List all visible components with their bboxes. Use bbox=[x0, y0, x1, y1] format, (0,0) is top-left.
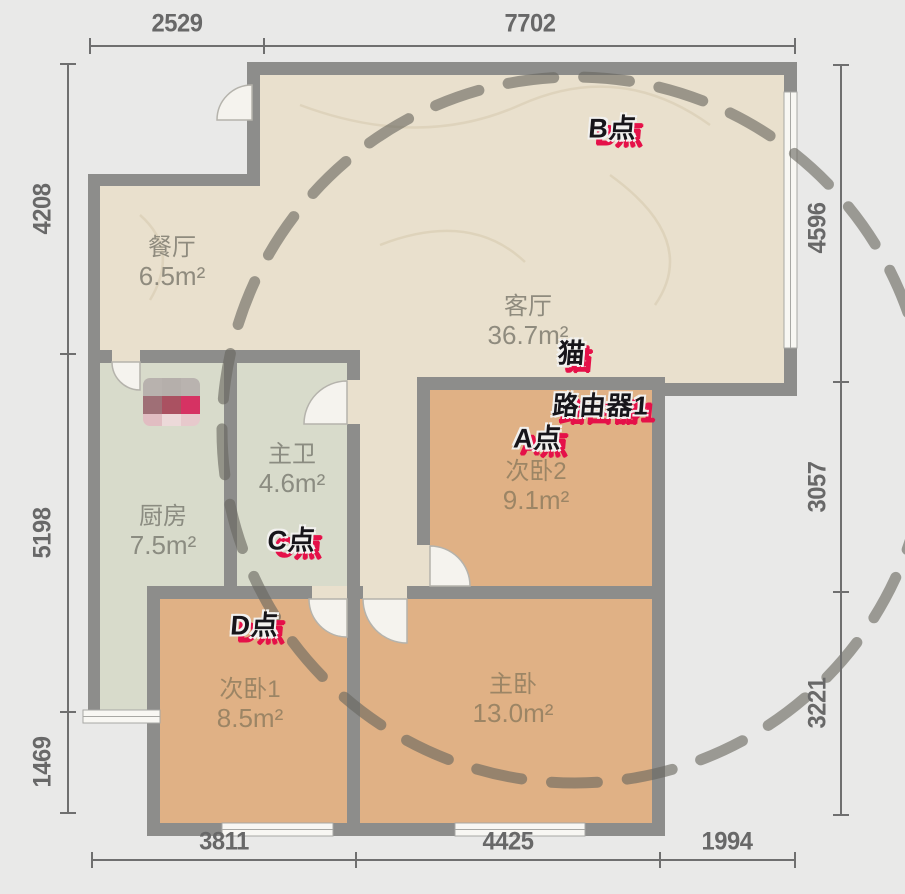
mosaic-cell bbox=[162, 378, 181, 396]
room-area: 7.5m² bbox=[130, 531, 196, 560]
mosaic-cell bbox=[143, 396, 162, 414]
dim-right-middle: 3057 bbox=[804, 462, 833, 513]
marker-text: A点 bbox=[512, 424, 563, 454]
room-name: 厨房 bbox=[130, 504, 196, 531]
room-label-bathroom: 主卫 4.6m² bbox=[259, 442, 325, 498]
room-label-dining: 餐厅 6.5m² bbox=[139, 235, 205, 291]
marker-d-point: D点 D点 bbox=[229, 604, 281, 643]
room-area: 13.0m² bbox=[473, 699, 554, 728]
dim-top-left: 2529 bbox=[152, 10, 203, 39]
marker-c-point: C点 C点 bbox=[266, 519, 318, 558]
room-label-kitchen: 厨房 7.5m² bbox=[130, 504, 196, 560]
dim-right-top: 4596 bbox=[804, 203, 833, 254]
dim-bottom-left: 3811 bbox=[199, 828, 249, 857]
dim-left-bottom: 1469 bbox=[29, 737, 58, 788]
room-name: 主卫 bbox=[259, 442, 325, 469]
room-area: 6.5m² bbox=[139, 262, 205, 291]
mosaic-cell bbox=[143, 414, 162, 426]
room-name: 次卧1 bbox=[217, 677, 283, 704]
marker-router: 路由器1 路由器1 bbox=[551, 386, 651, 423]
dim-right-bottom: 3221 bbox=[804, 678, 833, 729]
room-name: 餐厅 bbox=[139, 235, 205, 262]
marker-modem: 猫 猫 bbox=[556, 332, 587, 371]
room-name: 客厅 bbox=[488, 294, 569, 321]
floor-plan-drawing bbox=[0, 0, 905, 894]
room-area: 8.5m² bbox=[217, 704, 283, 733]
mosaic-cell bbox=[181, 396, 200, 414]
floor-plan-screenshot: 2529 7702 3811 4425 1994 4208 5198 1469 … bbox=[0, 0, 905, 894]
mosaic-cell bbox=[162, 414, 181, 426]
room-name: 主卧 bbox=[473, 672, 554, 699]
room-area: 36.7m² bbox=[488, 321, 569, 350]
dim-left-middle: 5198 bbox=[29, 508, 58, 559]
dim-left-top: 4208 bbox=[29, 184, 58, 235]
entry-door-arc bbox=[217, 85, 252, 120]
dim-bottom-right: 1994 bbox=[702, 828, 753, 857]
room-area: 9.1m² bbox=[503, 486, 569, 515]
room-name: 次卧2 bbox=[503, 459, 569, 486]
room-label-bedroom2: 次卧2 9.1m² bbox=[503, 459, 569, 515]
dim-top-right: 7702 bbox=[505, 10, 556, 39]
marker-text: 路由器1 bbox=[551, 391, 650, 421]
marker-b-point: B点 B点 bbox=[587, 107, 639, 146]
censored-watermark bbox=[143, 378, 200, 426]
mosaic-cell bbox=[181, 378, 200, 396]
marker-text: B点 bbox=[587, 114, 638, 144]
marker-text: D点 bbox=[229, 611, 280, 641]
room-label-living: 客厅 36.7m² bbox=[488, 294, 569, 350]
marker-text: C点 bbox=[266, 526, 317, 556]
marker-a-point: A点 A点 bbox=[512, 417, 564, 456]
dim-bottom-middle: 4425 bbox=[483, 828, 534, 857]
mosaic-cell bbox=[143, 378, 162, 396]
marker-text: 猫 bbox=[556, 339, 587, 369]
room-area: 4.6m² bbox=[259, 469, 325, 498]
mosaic-cell bbox=[181, 414, 200, 426]
mosaic-cell bbox=[162, 396, 181, 414]
room-label-bedroom1: 次卧1 8.5m² bbox=[217, 677, 283, 733]
room-label-master: 主卧 13.0m² bbox=[473, 672, 554, 728]
